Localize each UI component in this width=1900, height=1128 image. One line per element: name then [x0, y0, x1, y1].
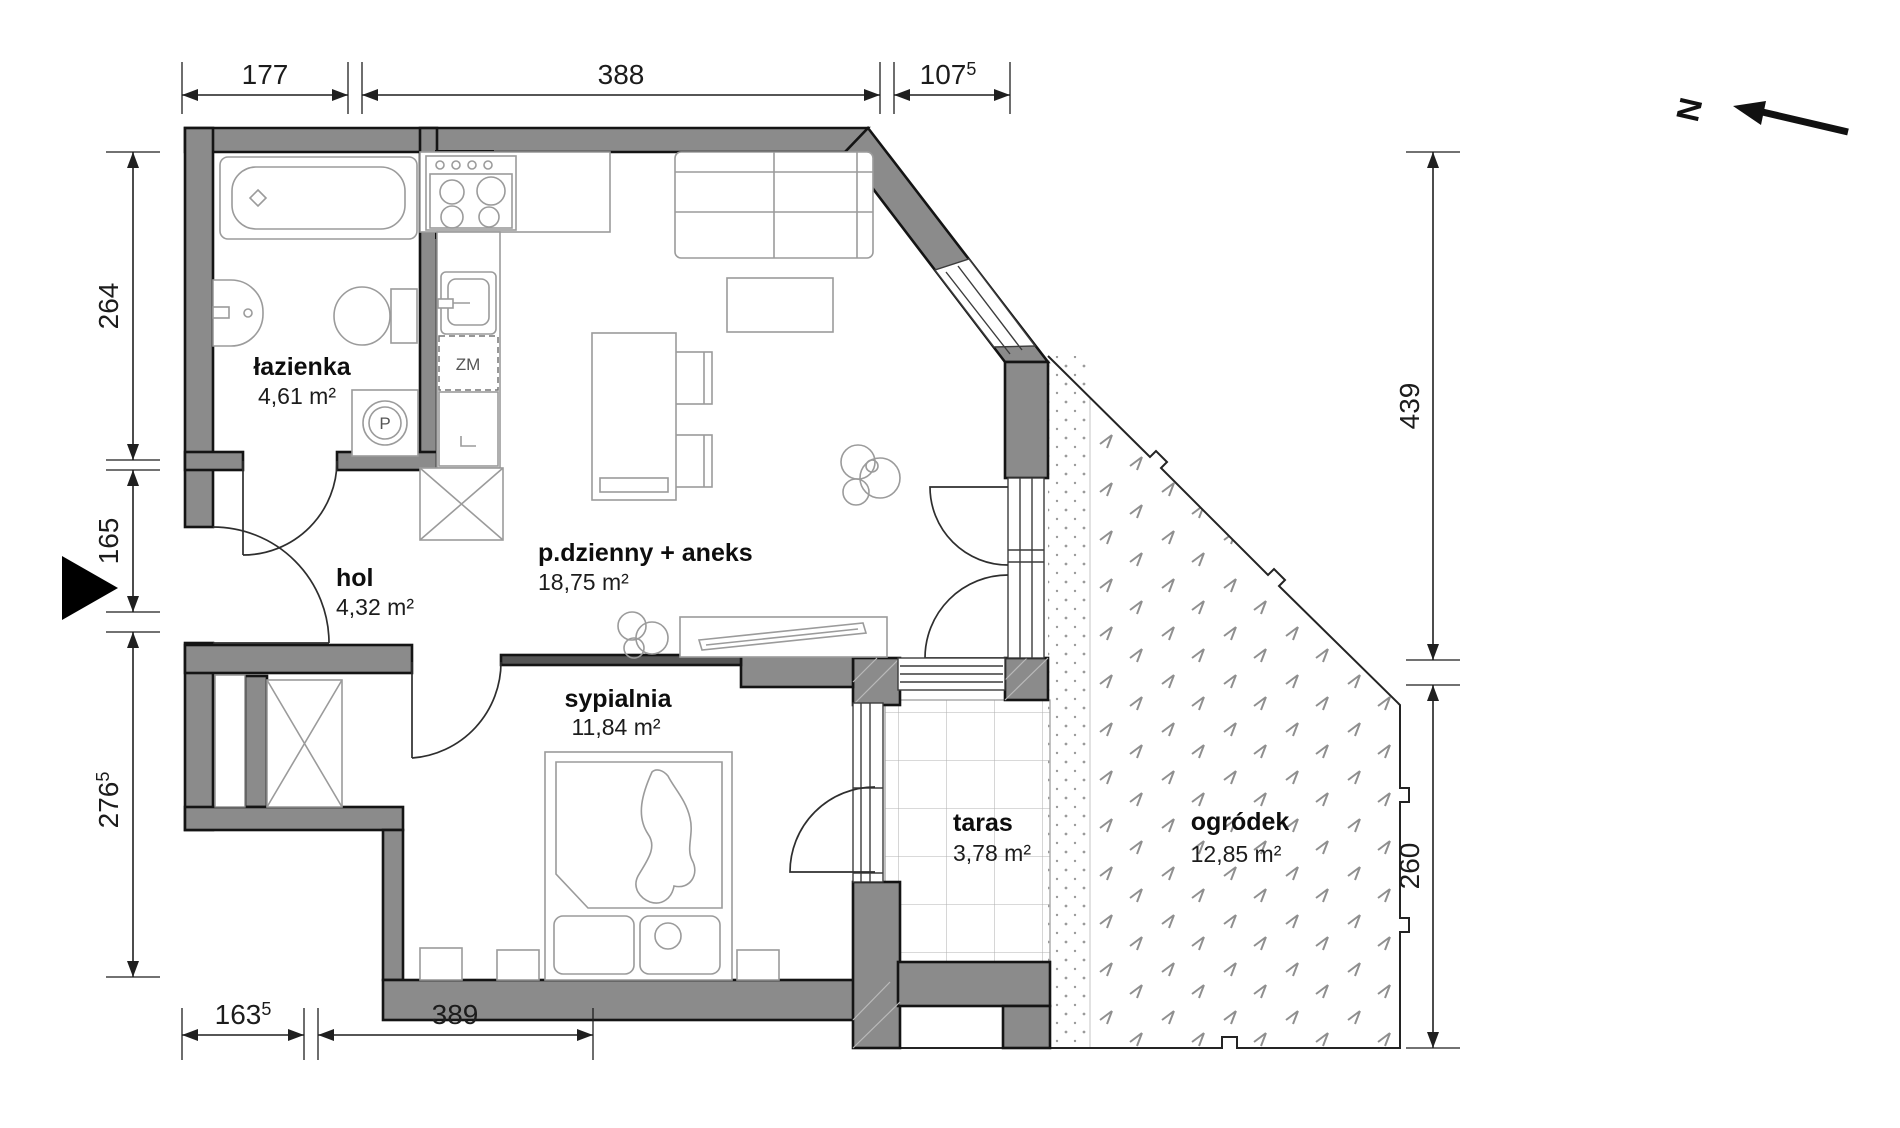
dim-value: 177 [242, 59, 289, 90]
dining-set [592, 333, 712, 500]
dining-table-icon [592, 333, 676, 500]
entrance-marker [62, 556, 118, 620]
nightstand-icon [737, 950, 779, 980]
wall-bathroom-south-west [185, 452, 243, 470]
floor-plan-drawing: P ZM [0, 0, 1900, 1128]
dim-value: 165 [93, 518, 124, 565]
dim-value: 1635 [215, 999, 272, 1030]
room-area: 4,61 m² [258, 383, 336, 409]
gravel-strip [1048, 356, 1090, 1048]
coffee-table-icon [727, 278, 833, 332]
duct-void [215, 675, 245, 807]
room-name: taras [953, 809, 1013, 837]
room-area: 12,85 m² [1191, 841, 1282, 867]
balcony-door-arc-upper [930, 487, 1008, 565]
wall-hall-south [185, 645, 412, 673]
room-name: hol [336, 564, 374, 592]
tall-cabinet-icon [420, 468, 503, 540]
sink-icon [213, 280, 263, 346]
washing-machine-icon: P [352, 390, 418, 456]
bathtub-icon [220, 157, 417, 239]
wall-se-pier [853, 882, 900, 1048]
room-label-bedroom: sypialnia 11,84 m² [565, 685, 673, 740]
dishwasher-icon: ZM [439, 336, 498, 390]
dim-value: 388 [598, 59, 645, 90]
window-bedroom-east [790, 703, 883, 882]
room-area: 11,84 m² [571, 714, 660, 740]
dim-left: 264 165 2765 [93, 152, 160, 977]
wall-niche-south [185, 807, 403, 830]
north-label: N [1669, 94, 1709, 125]
toilet-icon [334, 287, 417, 345]
room-name: ogródek [1191, 808, 1290, 836]
wall-terrace-corner [1003, 1006, 1050, 1048]
entrance-door [213, 527, 329, 643]
wall-bedroom-north [741, 656, 853, 687]
wall-bedroom-west [383, 830, 403, 980]
window-diagonal [935, 259, 1035, 354]
window-east-doors [925, 478, 1044, 658]
corner-cabinet-icon [439, 392, 498, 466]
dim-right: 439 260 [1394, 152, 1460, 1048]
room-label-living: p.dzienny + aneks 18,75 m² [538, 539, 753, 595]
room-name: p.dzienny + aneks [538, 539, 753, 567]
plant-icon [618, 612, 668, 658]
dim-value: 264 [93, 283, 124, 330]
wall-east-upper [1005, 362, 1048, 478]
room-area: 18,75 m² [538, 569, 629, 595]
room-label-bathroom: łazienka 4,61 m² [253, 353, 351, 409]
room-label-hall: hol 4,32 m² [336, 564, 414, 620]
wardrobe-icon [267, 680, 342, 807]
bench-icon [420, 948, 462, 980]
room-name: łazienka [253, 353, 351, 381]
wall-north [185, 128, 868, 152]
dim-top: 177 388 1075 [182, 59, 1010, 114]
dim-value: 389 [432, 999, 479, 1030]
north-arrow: N [1669, 94, 1848, 132]
sofa-icon [675, 152, 873, 258]
stove-icon [426, 156, 516, 230]
wall-niche-stub [245, 676, 267, 807]
balcony-door-arc-lower [925, 575, 1008, 658]
bed-icon [545, 752, 732, 980]
dim-value: 1075 [920, 59, 977, 90]
plant-icon [841, 445, 900, 505]
dim-value: 2765 [93, 772, 124, 829]
room-area: 4,32 m² [336, 594, 414, 620]
window-living-terrace [898, 658, 1005, 690]
washer-letter: P [379, 414, 390, 433]
wall-terrace-south [898, 962, 1050, 1006]
bathroom-door [243, 461, 337, 555]
nightstand-icon [497, 950, 539, 980]
dim-value: 260 [1394, 843, 1425, 890]
bedroom-door [412, 662, 501, 758]
room-area: 3,78 m² [953, 840, 1031, 866]
dishwasher-label: ZM [456, 355, 481, 374]
kitchen-sink-icon [438, 272, 496, 334]
floor-plan-page: P ZM [0, 0, 1900, 1128]
tv-cabinet-icon [680, 617, 887, 657]
dim-value: 439 [1394, 383, 1425, 430]
room-name: sypialnia [565, 685, 673, 713]
